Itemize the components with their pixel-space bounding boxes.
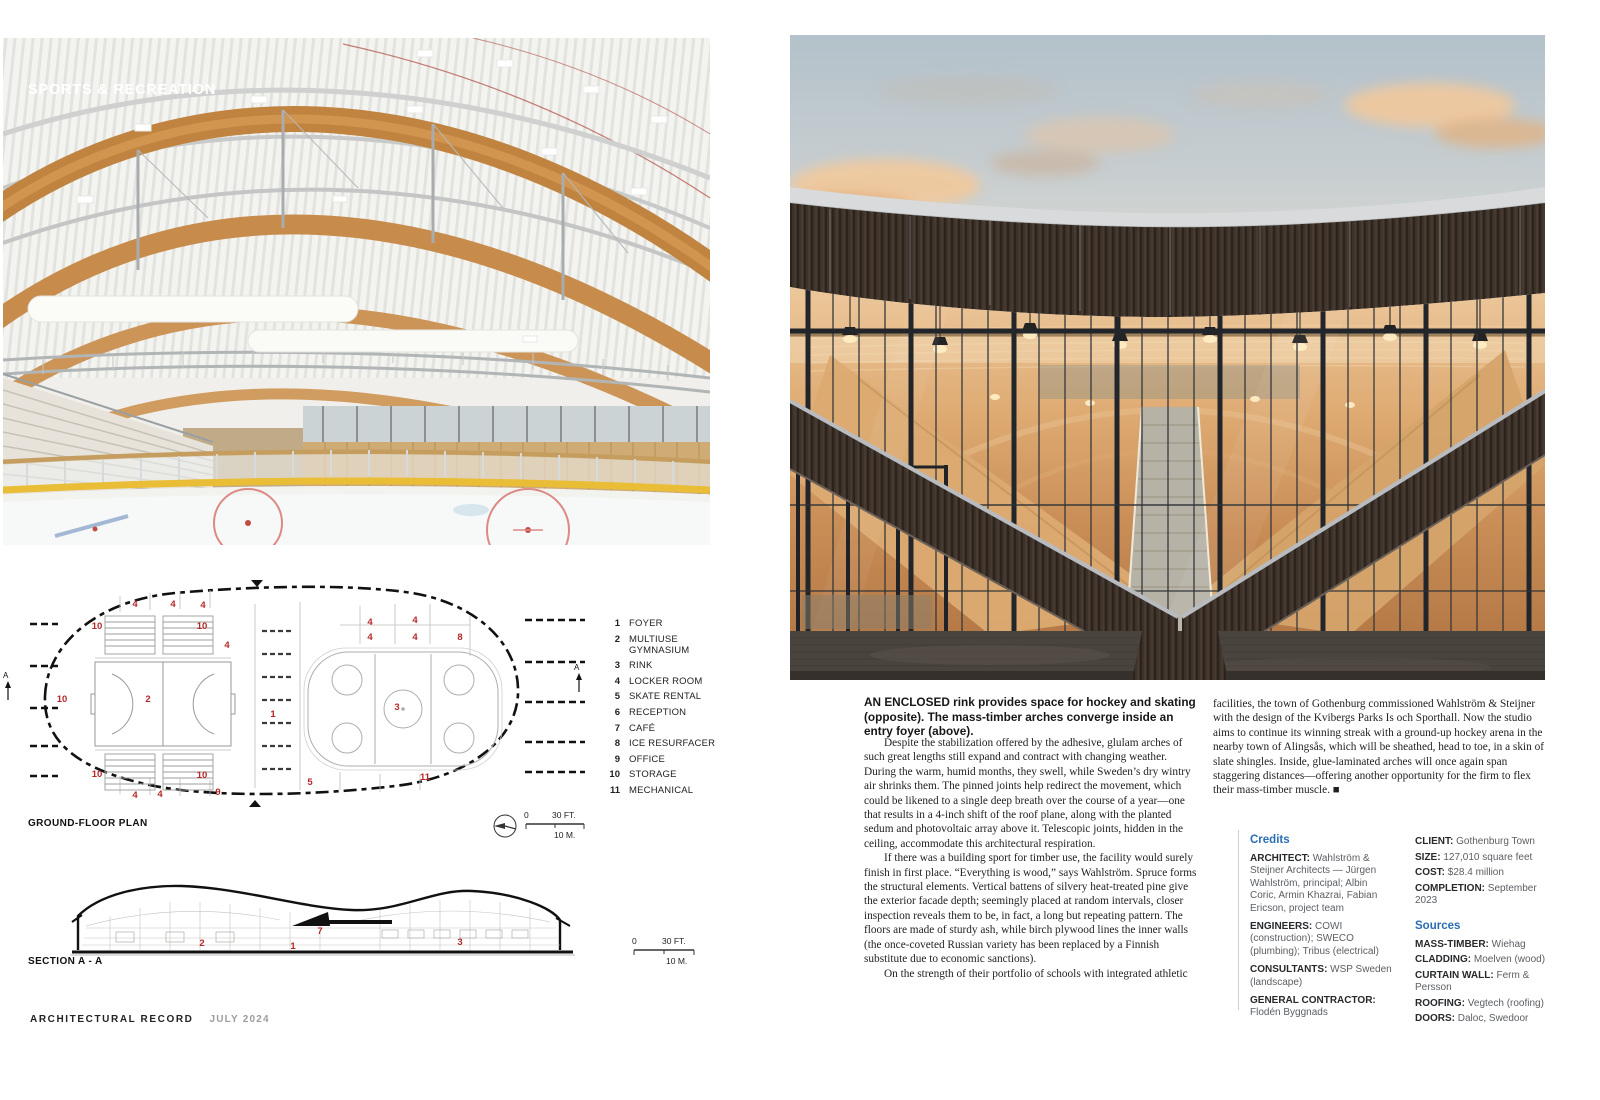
- source-item: CLADDING: Moelven (wood): [1415, 954, 1550, 966]
- svg-text:2: 2: [145, 694, 150, 705]
- svg-text:4: 4: [412, 632, 418, 643]
- svg-text:3: 3: [457, 937, 462, 948]
- svg-text:4: 4: [367, 617, 373, 628]
- photo-caption: AN ENCLOSED rink provides space for hock…: [864, 695, 1199, 739]
- plan-legend: 1FOYER 2MULTIUSE GYMNASIUM 3RINK 4LOCKER…: [606, 618, 716, 801]
- legend-item: 11MECHANICAL: [606, 785, 716, 796]
- paragraph: If there was a building sport for timber…: [864, 851, 1197, 966]
- svg-text:4: 4: [367, 632, 373, 643]
- section-a-a: 2 1 7 3: [70, 876, 575, 960]
- section-scale-bar: 0 30 FT. 10 M.: [626, 932, 706, 972]
- section-marker-a-left: A: [3, 671, 9, 680]
- section-marker-a-right: A: [574, 663, 580, 672]
- credit-item: ENGINEERS: COWI (construction); SWECO (p…: [1250, 921, 1392, 958]
- credit-item: GENERAL CONTRACTOR: Flodén Byggnads: [1250, 995, 1392, 1020]
- issue-date: JULY 2024: [209, 1014, 269, 1025]
- section-drawing: 2 1 7 3: [70, 876, 575, 960]
- svg-text:10: 10: [57, 694, 68, 705]
- article-column-1: Despite the stabilization offered by the…: [864, 736, 1197, 981]
- fact-item: COST: $28.4 million: [1415, 867, 1550, 879]
- credits-heading: Credits: [1250, 834, 1392, 846]
- svg-text:4: 4: [132, 790, 138, 801]
- svg-text:11: 11: [420, 772, 431, 783]
- plan-title: GROUND-FLOOR PLAN: [28, 818, 148, 829]
- section-title: SECTION A - A: [28, 956, 103, 967]
- credits-block: Credits ARCHITECT: Wahlström & Steijner …: [1250, 834, 1392, 1026]
- svg-text:10: 10: [197, 621, 208, 632]
- svg-text:2: 2: [199, 938, 204, 949]
- source-item: DOORS: Daloc, Swedoor: [1415, 1013, 1550, 1025]
- section-kicker: SPORTS & RECREATION: [28, 82, 216, 98]
- credit-item: ARCHITECT: Wahlström & Steijner Architec…: [1250, 853, 1392, 915]
- plan-room-numbers: 4 4 4 10 10 4 4 4 4 4 8 10 2 1 3 10 10 5…: [57, 599, 463, 801]
- fact-item: CLIENT: Gothenburg Town: [1415, 836, 1550, 848]
- svg-text:7: 7: [317, 926, 322, 937]
- rink-interior-photo: SPORTS & RECREATION: [3, 38, 710, 545]
- legend-item: 3RINK: [606, 660, 716, 671]
- paragraph: facilities, the town of Gothenburg commi…: [1213, 697, 1547, 798]
- sources-heading: Sources: [1415, 920, 1550, 932]
- source-item: ROOFING: Vegtech (roofing): [1415, 998, 1550, 1010]
- svg-text:4: 4: [157, 789, 163, 800]
- legend-item: 1FOYER: [606, 618, 716, 629]
- rink-interior-illustration: [3, 38, 710, 545]
- legend-item: 5SKATE RENTAL: [606, 691, 716, 702]
- ground-floor-plan: A A 4 4 4 10 10 4 4 4 4 4 8 10: [0, 576, 590, 811]
- svg-text:4: 4: [132, 599, 138, 610]
- caption-lead: AN ENCLOSED: [864, 695, 950, 709]
- exterior-illustration: [790, 35, 1545, 680]
- fact-item: COMPLETION: September 2023: [1415, 883, 1550, 908]
- legend-item: 4LOCKER ROOM: [606, 676, 716, 687]
- article-column-2: facilities, the town of Gothenburg commi…: [1213, 697, 1547, 798]
- magazine-spread: SPORTS & RECREATION: [0, 0, 1600, 1100]
- credit-item: CONSULTANTS: WSP Sweden (landscape): [1250, 964, 1392, 989]
- svg-text:4: 4: [200, 600, 206, 611]
- svg-text:5: 5: [307, 777, 313, 788]
- legend-item: 10STORAGE: [606, 769, 716, 780]
- magazine-name: ARCHITECTURAL RECORD: [30, 1014, 193, 1025]
- legend-item: 8ICE RESURFACER: [606, 738, 716, 749]
- ground-floor-plan-drawing: A A 4 4 4 10 10 4 4 4 4 4 8 10: [0, 576, 590, 811]
- svg-text:8: 8: [457, 632, 462, 643]
- svg-text:10: 10: [92, 621, 103, 632]
- svg-text:4: 4: [170, 599, 176, 610]
- svg-text:10: 10: [197, 770, 208, 781]
- exterior-photo: [790, 35, 1545, 680]
- legend-item: 6RECEPTION: [606, 707, 716, 718]
- svg-text:4: 4: [412, 615, 418, 626]
- north-arrow-icon: [494, 815, 516, 837]
- paragraph: Despite the stabilization offered by the…: [864, 736, 1197, 851]
- legend-item: 2MULTIUSE GYMNASIUM: [606, 634, 716, 656]
- svg-text:1: 1: [270, 709, 276, 720]
- svg-text:0: 0: [524, 810, 529, 820]
- legend-item: 9OFFICE: [606, 754, 716, 765]
- svg-text:0: 0: [632, 936, 637, 946]
- svg-text:30 FT.: 30 FT.: [662, 936, 686, 946]
- svg-text:9: 9: [215, 787, 220, 798]
- fact-item: SIZE: 127,010 square feet: [1415, 852, 1550, 864]
- svg-text:10 M.: 10 M.: [666, 956, 687, 966]
- credits-divider: [1238, 830, 1239, 1010]
- svg-text:10: 10: [92, 769, 103, 780]
- plan-scale-bar: 0 30 FT. 10 M.: [490, 804, 595, 844]
- svg-text:1: 1: [290, 941, 296, 952]
- source-item: CURTAIN WALL: Ferm & Persson: [1415, 970, 1550, 995]
- facts-block: CLIENT: Gothenburg Town SIZE: 127,010 sq…: [1415, 836, 1550, 1029]
- svg-text:3: 3: [394, 702, 399, 713]
- page-footer: ARCHITECTURAL RECORDJULY 2024: [30, 1014, 270, 1025]
- svg-text:4: 4: [224, 640, 230, 651]
- svg-text:10 M.: 10 M.: [554, 830, 575, 840]
- legend-item: 7CAFÉ: [606, 723, 716, 734]
- paragraph: On the strength of their portfolio of sc…: [864, 967, 1197, 981]
- svg-text:30 FT.: 30 FT.: [552, 810, 576, 820]
- source-item: MASS-TIMBER: Wiehag: [1415, 939, 1550, 951]
